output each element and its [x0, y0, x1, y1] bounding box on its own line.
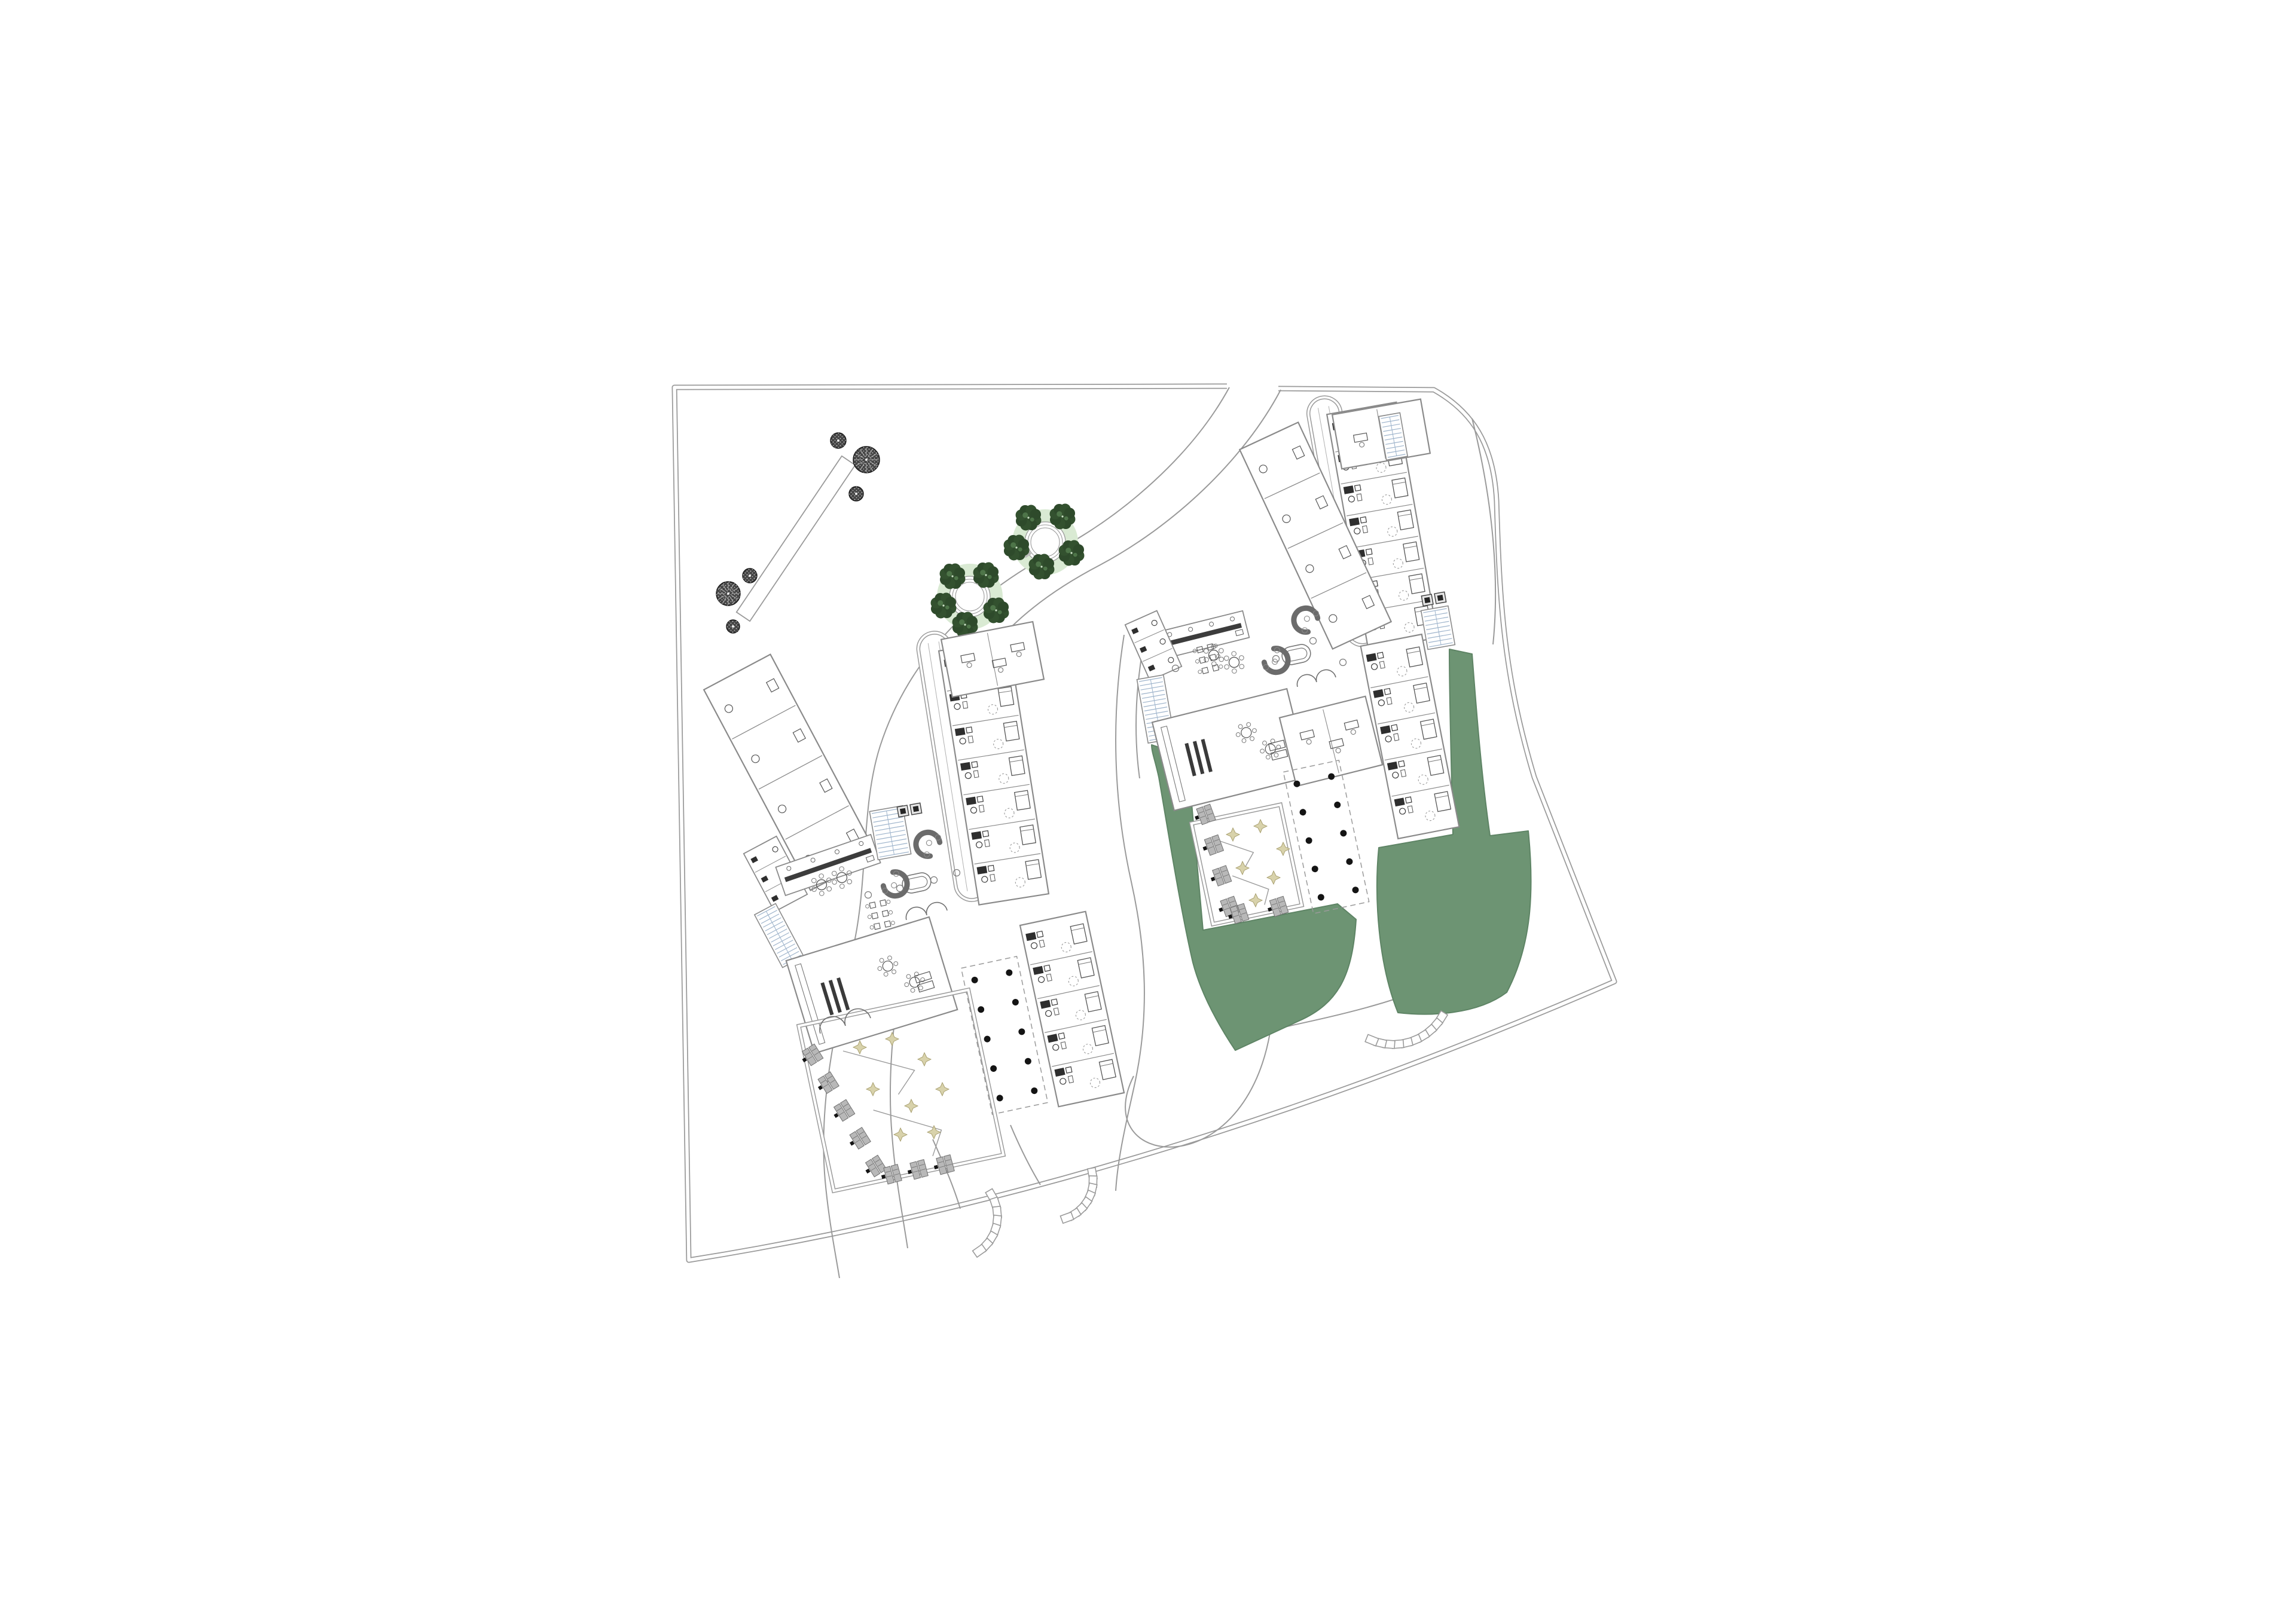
stippled-tree-icon	[716, 582, 740, 606]
stippled-tree-icon	[831, 433, 846, 448]
site-plan-drawing	[0, 0, 2296, 1623]
stippled-tree-icon	[726, 620, 740, 633]
paper-background	[0, 0, 2296, 1623]
stippled-tree-icon	[853, 447, 880, 473]
site-plan-canvas	[0, 0, 2296, 1623]
stippled-tree-icon	[849, 487, 863, 501]
stippled-tree-icon	[743, 568, 757, 583]
